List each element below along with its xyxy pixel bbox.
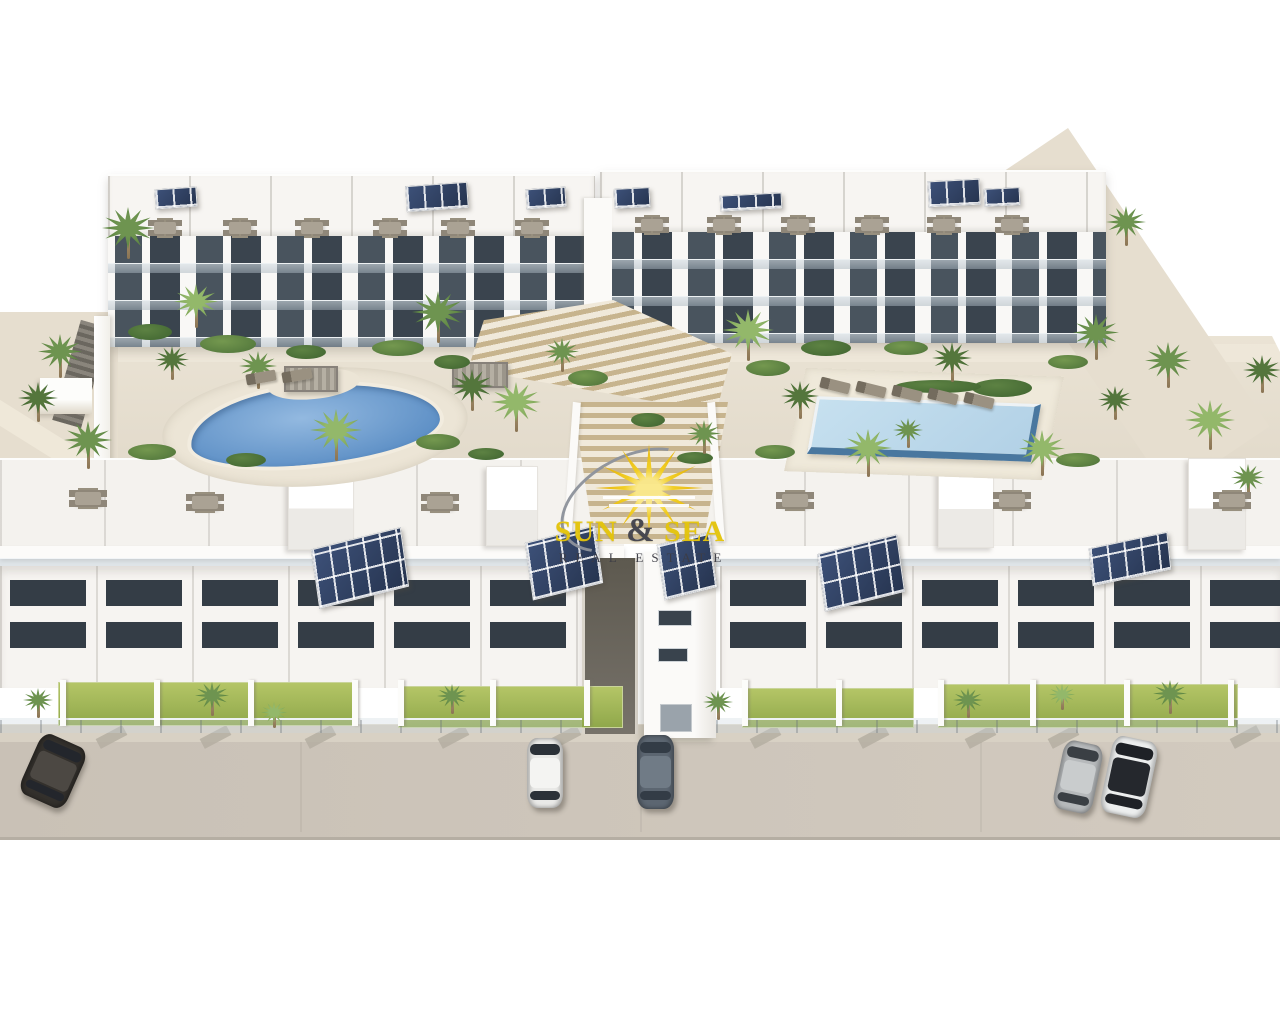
roof-terrace-furniture xyxy=(427,496,453,509)
garden-bush xyxy=(128,444,176,460)
parked-car xyxy=(637,735,674,809)
solar-panel-array xyxy=(405,182,469,212)
yard-divider-wall xyxy=(1030,680,1036,726)
garden-bush xyxy=(1048,355,1088,369)
car-roof xyxy=(530,758,560,789)
stairwell-box-2 xyxy=(486,466,538,546)
tower-door xyxy=(660,704,692,732)
yard-divider-wall xyxy=(1228,680,1234,726)
tower-window xyxy=(658,648,688,662)
garden-bush xyxy=(416,434,460,450)
yard-divider-wall xyxy=(60,680,66,726)
yard-divider-wall xyxy=(248,680,254,726)
palm-tree xyxy=(23,688,53,712)
sun-cloud-line xyxy=(609,504,689,507)
car-rear-window xyxy=(640,791,670,801)
solar-panel-array xyxy=(525,187,566,210)
car-roof xyxy=(1107,756,1151,797)
tower-window xyxy=(658,610,692,626)
logo-title-sea: SEA xyxy=(664,515,725,548)
garden-bush xyxy=(128,324,172,340)
back-left-floor-3 xyxy=(108,236,595,273)
roof-terrace-furniture xyxy=(1219,494,1245,507)
logo-title-sun: SUN xyxy=(555,515,618,548)
logo-subtitle: REAL ESTATE xyxy=(545,550,735,566)
roof-terrace-furniture xyxy=(75,492,101,505)
yard-divider-wall xyxy=(836,680,842,726)
front-right-facade xyxy=(720,566,1280,688)
garden-bush xyxy=(568,370,608,386)
garden-bush xyxy=(226,453,266,467)
facade-window-row xyxy=(720,622,1280,648)
garden-bush xyxy=(972,379,1032,397)
yard-divider-wall xyxy=(584,680,590,726)
garden-bush xyxy=(631,413,665,427)
sun-and-sea-watermark: SUN & SEA REAL ESTATE xyxy=(545,450,735,574)
roof-terrace-furniture xyxy=(861,219,883,231)
yard-divider-wall xyxy=(742,680,748,726)
car-roof xyxy=(640,756,670,789)
sun-cloud-line xyxy=(603,496,695,499)
garden-bush xyxy=(372,340,424,356)
left-utility-shed xyxy=(40,378,92,414)
car-windshield xyxy=(530,744,560,755)
roof-terrace-furniture xyxy=(379,222,401,234)
roof-terrace-furniture xyxy=(301,222,323,234)
roof-terrace-furniture xyxy=(787,219,809,231)
garden-bush xyxy=(1056,453,1100,467)
roof-terrace-furniture xyxy=(229,222,251,234)
car-rear-window xyxy=(530,791,560,800)
roof-terrace-furniture xyxy=(933,219,955,231)
solar-panel-array xyxy=(614,187,651,209)
logo-title: SUN & SEA xyxy=(545,512,735,550)
roof-terrace-furniture xyxy=(192,496,218,509)
street-glass-fence-right xyxy=(716,718,1280,733)
solar-panel-array xyxy=(984,187,1021,207)
facade-window-row xyxy=(720,580,1280,606)
parked-car xyxy=(527,738,563,808)
garden-bush xyxy=(801,340,851,356)
garden-bush xyxy=(468,448,504,460)
back-right-rooftop xyxy=(600,170,1106,232)
roof-terrace-furniture xyxy=(641,219,663,231)
street-seam xyxy=(980,742,982,832)
roof-terrace-furniture xyxy=(521,222,543,234)
facade-window-row xyxy=(0,580,582,606)
back-left-floor-2 xyxy=(108,273,595,310)
facade-window-row xyxy=(0,622,582,648)
yard-divider-wall xyxy=(1124,680,1130,726)
back-right-apartment-block xyxy=(600,170,1106,343)
roof-terrace-furniture xyxy=(447,222,469,234)
garden-bush xyxy=(884,341,928,355)
roof-terrace-furniture xyxy=(154,222,176,234)
garden-bush xyxy=(286,345,326,359)
roof-terrace-furniture xyxy=(782,494,808,507)
garden-bush xyxy=(434,355,470,369)
front-left-facade xyxy=(0,566,582,688)
car-roof xyxy=(1059,759,1097,796)
solar-panel-array xyxy=(154,187,197,210)
yard-divider-wall xyxy=(490,680,496,726)
yard-divider-wall xyxy=(938,680,944,726)
yard-divider-wall xyxy=(352,680,358,726)
solar-panel-array xyxy=(927,179,980,208)
back-right-floor-2 xyxy=(600,269,1106,306)
garden-bush xyxy=(746,360,790,376)
logo-ampersand: & xyxy=(626,512,655,549)
yard-divider-wall xyxy=(398,680,404,726)
architectural-render: SUN & SEA REAL ESTATE xyxy=(0,0,1280,1024)
car-windshield xyxy=(640,742,670,754)
garden-bush xyxy=(200,335,256,353)
right-rectangular-pool xyxy=(807,396,1041,461)
yard-divider-wall xyxy=(154,680,160,726)
roof-terrace-furniture xyxy=(713,219,735,231)
back-right-floor-3 xyxy=(600,232,1106,269)
garden-bush xyxy=(755,445,795,459)
roof-terrace-furniture xyxy=(1001,219,1023,231)
roof-terrace-furniture xyxy=(999,494,1025,507)
solar-panel-array xyxy=(720,192,783,211)
street-seam xyxy=(300,742,302,832)
